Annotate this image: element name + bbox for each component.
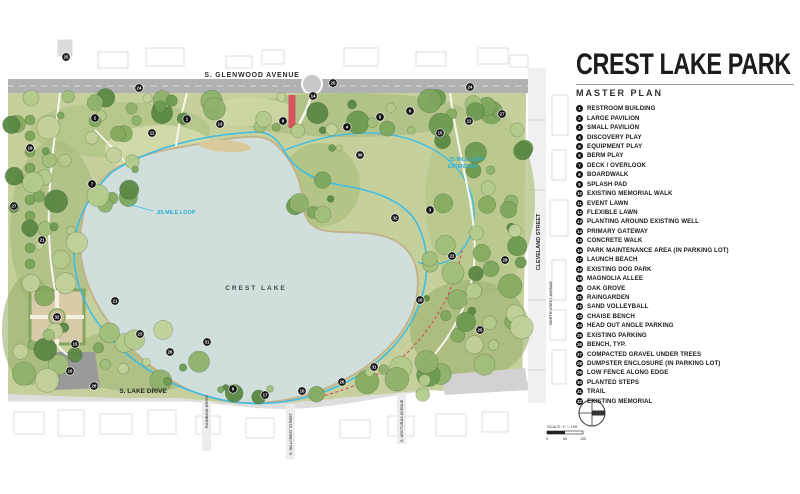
legend-number-badge: 14 (576, 228, 583, 235)
legend-item: 3SMALL PAVILION (576, 123, 796, 132)
building-outline (552, 350, 566, 384)
tree (424, 295, 430, 301)
legend-number-badge: 18 (576, 266, 583, 273)
tree (57, 112, 64, 119)
tree (132, 116, 142, 126)
legend-item: 2LARGE PAVILION (576, 113, 796, 122)
map-marker-number: 32 (393, 216, 398, 221)
tree (22, 274, 40, 292)
legend-number-badge: 3 (576, 124, 583, 131)
legend-item: 19MAGNOLIA ALLEE (576, 274, 796, 283)
legend-number-badge: 11 (576, 200, 583, 207)
tree (386, 103, 396, 113)
legend-item: 22SAND VOLLEYBALL (576, 302, 796, 311)
legend-number-badge: 19 (576, 275, 583, 282)
building-outline (552, 95, 568, 135)
building-outline (552, 150, 566, 180)
tree (448, 290, 468, 310)
legend-number-badge: 7 (576, 162, 583, 169)
legend-item: 21RAINGARDEN (576, 293, 796, 302)
tree (93, 343, 103, 353)
tree (315, 206, 331, 222)
legend-number-badge: 21 (576, 294, 583, 301)
tree (58, 154, 71, 167)
tree (483, 261, 499, 277)
building-outline (344, 48, 378, 66)
legend-item: 24HEAD OUT ANGLE PARKING (576, 321, 796, 330)
legend-number-badge: 8 (576, 171, 583, 178)
tree (50, 223, 58, 231)
tree (514, 142, 532, 160)
legend-number-badge: 2 (576, 115, 583, 122)
legend-item-label: RESTROOM BUILDING (587, 105, 655, 112)
legend-item-label: PLANTING AROUND EXISTING WELL (587, 218, 699, 225)
street-label-lake-drive: S. LAKE DRIVE (119, 388, 167, 395)
tree (326, 124, 338, 136)
map-marker-number: 24 (137, 86, 142, 91)
legend-item-label: EXISTING MEMORIAL (587, 398, 652, 405)
legend-item-label: SPLASH PAD (587, 181, 627, 188)
tree (13, 344, 28, 359)
map-marker-number: 31 (372, 365, 377, 370)
legend-number-badge: 9 (576, 181, 583, 188)
allee-tree (25, 163, 35, 173)
scale-bar: SCALE: 1" = 100' 0 50 100 (546, 424, 586, 441)
legend-item-label: LOW FENCE ALONG EDGE (587, 369, 668, 376)
tree (474, 354, 495, 375)
legend-number-badge: 31 (576, 388, 583, 395)
tree (154, 101, 166, 113)
tree (12, 362, 35, 385)
building-outline (340, 420, 370, 438)
tree (473, 244, 490, 261)
map-marker-number: 18 (418, 298, 423, 303)
legend-number-badge: 6 (576, 152, 583, 159)
allee-tree (25, 243, 35, 253)
legend-item: 30PLANTED STEPS (576, 378, 796, 387)
tree (422, 251, 437, 266)
tree (510, 123, 524, 137)
tree (466, 283, 482, 299)
map-marker-number: 16 (68, 369, 73, 374)
tree (106, 147, 122, 163)
legend-item-label: TRAIL (587, 388, 606, 395)
tree (307, 102, 328, 123)
building-outline (146, 48, 184, 66)
map-marker-number: 17 (263, 393, 268, 398)
legend-item: 32EXISTING MEMORIAL (576, 397, 796, 406)
tree (500, 201, 517, 218)
legend-number-badge: 1 (576, 105, 583, 112)
tree (478, 196, 495, 213)
legend-item-label: COMPACTED GRAVEL UNDER TREES (587, 351, 701, 358)
scale-tick: 0 (546, 437, 548, 441)
tree (434, 194, 453, 213)
tree (55, 273, 76, 294)
tree (408, 127, 416, 135)
tree (87, 95, 103, 111)
allee-tree (25, 131, 35, 141)
legend-item-label: DISCOVERY PLAY (587, 134, 642, 141)
legend-item: 11EVENT LAWN (576, 198, 796, 207)
legend-item-label: PARK MAINTENANCE AREA (IN PARKING LOT) (587, 247, 729, 254)
tree (481, 181, 495, 195)
map-marker-number: 24 (468, 85, 473, 90)
legend-item-label: BERM PLAY (587, 152, 623, 159)
building-outline (482, 412, 508, 432)
tree (442, 262, 464, 284)
building-outline (436, 414, 466, 436)
legend-item: 9SPLASH PAD (576, 180, 796, 189)
map-marker-number: 15 (73, 342, 78, 347)
tree (329, 145, 336, 152)
legend-item-label: OAK GROVE (587, 285, 625, 292)
legend-number-badge: 17 (576, 256, 583, 263)
tree (188, 351, 209, 372)
title-legend-panel: CREST LAKE PARK MASTER PLAN 1RESTROOM BU… (576, 50, 796, 406)
legend-item: 18EXISTING DOG PARK (576, 264, 796, 273)
tree (62, 90, 74, 102)
legend-number-badge: 29 (576, 369, 583, 376)
tree (111, 126, 126, 141)
legend-item: 10EXISTING MEMORIAL WALK (576, 189, 796, 198)
legend-number-badge: 10 (576, 190, 583, 197)
tree (419, 374, 431, 386)
map-marker-number: 27 (500, 112, 505, 117)
page-subtitle: MASTER PLAN (576, 88, 796, 98)
tree (179, 364, 187, 372)
legend-item-label: SMALL PAVILION (587, 124, 639, 131)
tree (203, 98, 225, 120)
tree (515, 257, 526, 268)
tree (441, 310, 451, 320)
legend-item-label: EQUIPMENT PLAY (587, 143, 642, 150)
map-marker-number: 22 (450, 254, 455, 259)
scale-text: SCALE: 1" = 100' (547, 424, 578, 429)
map-marker-number: 21 (113, 299, 118, 304)
map-marker-number: 27 (12, 204, 17, 209)
legend-item-label: LARGE PAVILION (587, 115, 640, 122)
legend-item: 29LOW FENCE ALONG EDGE (576, 368, 796, 377)
tree (5, 167, 23, 185)
legend-number-badge: 4 (576, 134, 583, 141)
legend-number-badge: 28 (576, 360, 583, 367)
legend-number-badge: 22 (576, 303, 583, 310)
legend-number-badge: 30 (576, 379, 583, 386)
map-marker-number: 19 (28, 146, 33, 151)
tree (256, 111, 272, 127)
legend-item: 27COMPACTED GRAVEL UNDER TREES (576, 349, 796, 358)
legend-item-label: CONCRETE WALK (587, 237, 642, 244)
legend-item-label: SAND VOLLEYBALL (587, 303, 648, 310)
tree (418, 89, 442, 113)
tree (336, 145, 343, 152)
legend-item-label: EXISTING PARKING (587, 332, 647, 339)
legend-item: 15CONCRETE WALK (576, 236, 796, 245)
legend-item-label: BENCH, TYP. (587, 341, 626, 348)
tree (488, 340, 499, 351)
legend-item: 17LAUNCH BEACH (576, 255, 796, 264)
map-marker-number: 11 (150, 131, 155, 136)
tree (509, 224, 522, 237)
street-label-cross-3: S. ARCTURAS AVENUE (400, 399, 404, 442)
tree (291, 124, 305, 138)
legend-item-label: EXISTING DOG PARK (587, 266, 652, 273)
tree (142, 358, 150, 366)
legend-item-label: FLEXIBLE LAWN (587, 209, 638, 216)
building-outline (552, 260, 566, 300)
building-outline (14, 412, 44, 434)
legend-item: 12FLEXIBLE LAWN (576, 208, 796, 217)
legend-number-badge: 23 (576, 313, 583, 320)
legend-item-label: MAGNOLIA ALLEE (587, 275, 643, 282)
building-outline (246, 418, 274, 438)
street-label-cleveland: CLEVELAND STREET (536, 213, 542, 270)
legend-item: 23CHAISE BENCH (576, 312, 796, 321)
legend-item: 25EXISTING PARKING (576, 331, 796, 340)
tree (132, 166, 139, 173)
loop-extension-label-2: EXTENSION (448, 164, 477, 170)
map-marker-number: 25 (331, 81, 336, 86)
tree (43, 329, 55, 341)
building-outline (478, 48, 508, 64)
legend-number-badge: 15 (576, 237, 583, 244)
legend-item-label: PLANTED STEPS (587, 379, 639, 386)
tree (508, 236, 527, 255)
tree (218, 386, 224, 392)
tree (163, 377, 171, 385)
legend-item-label: CHAISE BENCH (587, 313, 635, 320)
legend-item-label: RAINGARDEN (587, 294, 630, 301)
legend-item-label: BOARDWALK (587, 171, 628, 178)
tree (52, 250, 70, 268)
map-marker-number: 26 (168, 350, 173, 355)
scale-tick: 50 (563, 437, 567, 441)
legend-item: 26BENCH, TYP. (576, 340, 796, 349)
legend-number-badge: 16 (576, 247, 583, 254)
legend-item: 6BERM PLAY (576, 151, 796, 160)
legend-number-badge: 24 (576, 322, 583, 329)
tree (45, 190, 68, 213)
tree (465, 336, 483, 354)
tree (367, 118, 377, 128)
legend-item: 4DISCOVERY PLAY (576, 132, 796, 141)
tree (154, 320, 173, 339)
street-label-glenwood: S. GLENWOOD AVENUE (204, 72, 299, 79)
building-outline (550, 200, 568, 236)
tree (348, 100, 357, 109)
map-marker-number: 28 (92, 384, 97, 389)
map-marker-number: 14 (311, 94, 316, 99)
legend-list: 1RESTROOM BUILDING2LARGE PAVILION3SMALL … (576, 104, 796, 406)
legend-item: 5EQUIPMENT PLAY (576, 142, 796, 151)
map-marker-number: 15 (438, 131, 443, 136)
legend-number-badge: 5 (576, 143, 583, 150)
tree (34, 338, 57, 361)
tree (267, 386, 274, 393)
page-title: CREST LAKE PARK (576, 50, 748, 80)
legend-item: 7DECK / OVERLOOK (576, 161, 796, 170)
legend-item-label: EXISTING MEMORIAL WALK (587, 190, 673, 197)
tree (456, 312, 475, 331)
legend-item-label: DECK / OVERLOOK (587, 162, 646, 169)
tree (22, 220, 38, 236)
tree (379, 365, 389, 375)
map-marker-number: 29 (503, 258, 508, 263)
legend-item: 14PRIMARY GATEWAY (576, 227, 796, 236)
legend-item-label: EVENT LAWN (587, 200, 628, 207)
street-label-cross-1: RAINBOW DRIVE (204, 395, 209, 428)
legend-number-badge: 27 (576, 351, 583, 358)
legend-number-badge: 32 (576, 398, 583, 405)
legend-item: 16PARK MAINTENANCE AREA (IN PARKING LOT) (576, 246, 796, 255)
allee-tree (25, 115, 35, 125)
building-outline (416, 52, 446, 66)
legend-number-badge: 13 (576, 218, 583, 225)
tree (277, 92, 286, 101)
legend-number-badge: 12 (576, 209, 583, 216)
building-outline (98, 52, 128, 68)
legend-number-badge: 25 (576, 332, 583, 339)
tree (126, 103, 137, 114)
legend-item-label: LAUNCH BEACH (587, 256, 638, 263)
lake-name-label: CREST LAKE (225, 285, 287, 292)
tree (289, 194, 308, 213)
allee-tree (25, 211, 35, 221)
building-outline (148, 410, 176, 434)
map-marker-number: 12 (467, 119, 472, 124)
title-rule (576, 84, 794, 85)
map-marker-number: 25 (64, 55, 69, 60)
tree (415, 351, 438, 374)
tree (120, 180, 139, 199)
map-marker-number: 32 (55, 315, 60, 320)
legend-item: 20OAK GROVE (576, 283, 796, 292)
scale-tick: 100 (580, 437, 586, 441)
building-outline (510, 55, 528, 67)
tree (380, 121, 395, 136)
tree (23, 90, 39, 106)
legend-item-label: HEAD OUT ANGLE PARKING (587, 322, 674, 329)
tree (143, 94, 152, 103)
map-marker-number: 21 (40, 238, 45, 243)
tree (469, 266, 484, 281)
map-marker-number: 25 (478, 328, 483, 333)
tree (100, 359, 110, 369)
tree (327, 196, 334, 203)
tree (42, 148, 49, 155)
tree (510, 316, 533, 339)
tree (35, 369, 59, 393)
allee-tree (25, 259, 35, 269)
legend-item-label: PRIMARY GATEWAY (587, 228, 648, 235)
street-label-cross-2: S. HILLCREST STREET (289, 412, 293, 455)
legend-item: 13PLANTING AROUND EXISTING WELL (576, 217, 796, 226)
map-marker-number: 23 (138, 332, 143, 337)
legend-item: 8BOARDWALK (576, 170, 796, 179)
building-outline (100, 414, 132, 434)
legend-number-badge: 20 (576, 285, 583, 292)
tree (100, 323, 120, 343)
tree (314, 172, 331, 189)
legend-number-badge: 26 (576, 341, 583, 348)
map-marker-number: 10 (300, 389, 305, 394)
main-loop-label: .85 MILE LOOP (156, 210, 196, 216)
tree (416, 388, 430, 402)
tree (469, 226, 483, 240)
tree (486, 166, 495, 175)
map-marker-number: 30 (358, 153, 363, 158)
tree (272, 123, 280, 131)
building-outline (262, 50, 284, 64)
tree (118, 363, 129, 374)
building-outline (226, 56, 252, 68)
tree (85, 131, 98, 144)
tree (37, 116, 60, 139)
map-marker-number: 31 (205, 340, 210, 345)
map-marker-number: 26 (340, 380, 345, 385)
tree (66, 232, 87, 253)
legend-item: 1RESTROOM BUILDING (576, 104, 796, 113)
tree (166, 95, 178, 107)
map-marker-number: 13 (218, 122, 223, 127)
tree (498, 274, 522, 298)
tree (483, 316, 497, 330)
building-outline (58, 410, 84, 436)
tree (23, 172, 44, 193)
legend-item-label: DUMPSTER ENCLOSURE (IN PARKING LOT) (587, 360, 720, 367)
legend-item: 28DUMPSTER ENCLOSURE (IN PARKING LOT) (576, 359, 796, 368)
street-label-north-crest: NORTH CREST AVENUE (549, 281, 553, 325)
tree (3, 116, 21, 134)
legend-item: 31TRAIL (576, 387, 796, 396)
loop-extension-label-1: .25 MILE LOOP (448, 157, 485, 163)
roundabout (302, 74, 322, 94)
tree (42, 153, 57, 168)
tree (309, 386, 325, 402)
tree (68, 348, 82, 362)
